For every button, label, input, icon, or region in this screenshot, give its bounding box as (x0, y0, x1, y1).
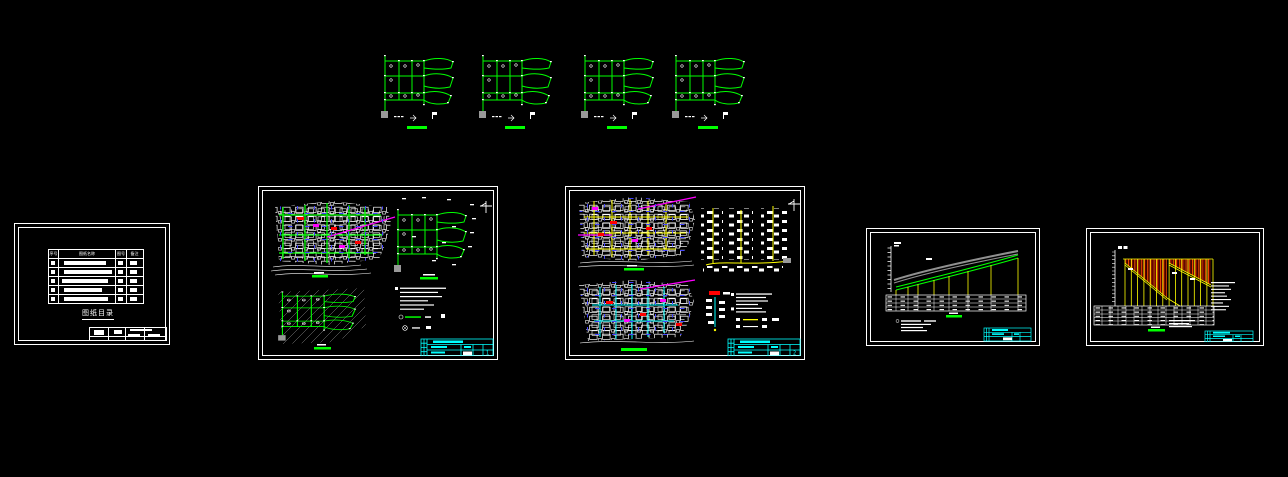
chart-title-underline (1148, 329, 1165, 332)
sheet-number: 2 (793, 351, 796, 357)
detail-riser-diagram (706, 291, 730, 331)
notes-block (395, 287, 446, 310)
pipe-profile-lines (896, 255, 1018, 290)
sheet-profile-1[interactable] (866, 228, 1040, 346)
catalog-row (49, 295, 143, 303)
profile-table (1094, 306, 1214, 325)
titleblock: 1 (421, 339, 493, 356)
chart-title-underline (946, 315, 962, 318)
branch-diagram-yellow (701, 206, 791, 274)
sheet-number: 1 (486, 351, 489, 357)
catalog-header-note: 备注 (127, 250, 142, 258)
map-title-underline (312, 275, 328, 278)
profile-table (886, 295, 1026, 311)
network-diagram (394, 197, 476, 280)
sheet-catalog-inner-border: 序号 图纸名称 图号 备注 (18, 227, 166, 341)
sheet-profile-2[interactable] (1086, 228, 1264, 346)
catalog-header-row: 序号 图纸名称 图号 备注 (49, 250, 143, 259)
scheme-diagram-1[interactable] (379, 48, 463, 132)
catalog-header-no: 序号 (49, 250, 59, 258)
cad-canvas[interactable]: 序号 图纸名称 图号 备注 (0, 0, 1288, 477)
sheet-plan-1[interactable]: 1 (258, 186, 498, 360)
site-map-yellow (578, 197, 696, 267)
terrain-grid-map (278, 288, 366, 350)
site-map-cyan (579, 280, 695, 343)
catalog-header-name: 图纸名称 (59, 250, 116, 258)
north-arrow-icon (480, 201, 492, 213)
north-arrow-icon (788, 199, 800, 211)
sheet-plan-2[interactable]: 2 (565, 186, 805, 360)
catalog-titleblock (89, 327, 167, 341)
ground-profile-line (894, 251, 1018, 283)
profile-1-drawing (872, 234, 1036, 342)
catalog-row (49, 286, 143, 295)
catalog-header-id: 图号 (116, 250, 127, 258)
catalog-title: 图纸目录 (82, 308, 114, 320)
titleblock: 2 (728, 339, 800, 356)
profile-2-drawing (1092, 234, 1260, 342)
titleblock (984, 328, 1031, 341)
site-map-green (271, 201, 395, 275)
scheme-diagram-2[interactable] (477, 48, 561, 132)
catalog-row (49, 259, 143, 268)
notes-block (896, 320, 936, 332)
scheme-diagram-3[interactable] (579, 48, 663, 132)
elevation-axis (888, 242, 902, 292)
sheet-catalog[interactable]: 序号 图纸名称 图号 备注 (14, 223, 170, 345)
plan-2-drawing: 2 (571, 192, 801, 356)
titleblock (1205, 331, 1253, 342)
notes-block (1211, 282, 1235, 310)
catalog-table: 序号 图纸名称 图号 备注 (48, 249, 144, 304)
scheme-diagram-4[interactable] (670, 48, 754, 132)
catalog-row (49, 268, 143, 277)
plan-1-drawing: 1 (264, 192, 494, 356)
legend-block (736, 318, 779, 328)
legend-block (399, 314, 445, 330)
notes-block (731, 293, 772, 313)
catalog-row (49, 277, 143, 286)
